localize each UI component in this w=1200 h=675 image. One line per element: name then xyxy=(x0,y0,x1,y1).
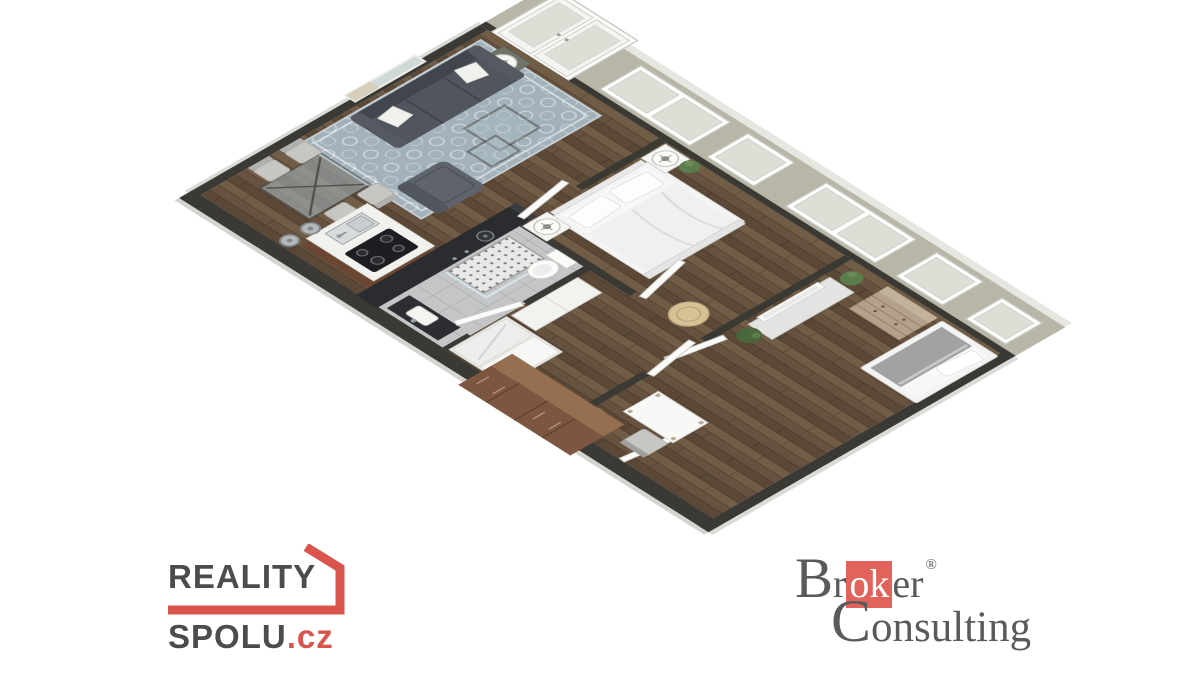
logo-text-consulting: Consulting xyxy=(831,591,1085,651)
logo-text-cz: .cz xyxy=(287,618,334,655)
floorplan-render: REALITY SPOLU.cz Broker® Consulting xyxy=(0,0,1200,675)
logo-text-spolu: SPOLU.cz xyxy=(168,618,334,656)
logo-text-reality: REALITY xyxy=(168,558,316,596)
registered-mark: ® xyxy=(925,557,936,573)
broker-consulting-logo: Broker® Consulting xyxy=(795,550,1085,660)
logo-text-spolu-word: SPOLU xyxy=(168,618,287,655)
reality-spolu-logo: REALITY SPOLU.cz xyxy=(162,544,354,660)
